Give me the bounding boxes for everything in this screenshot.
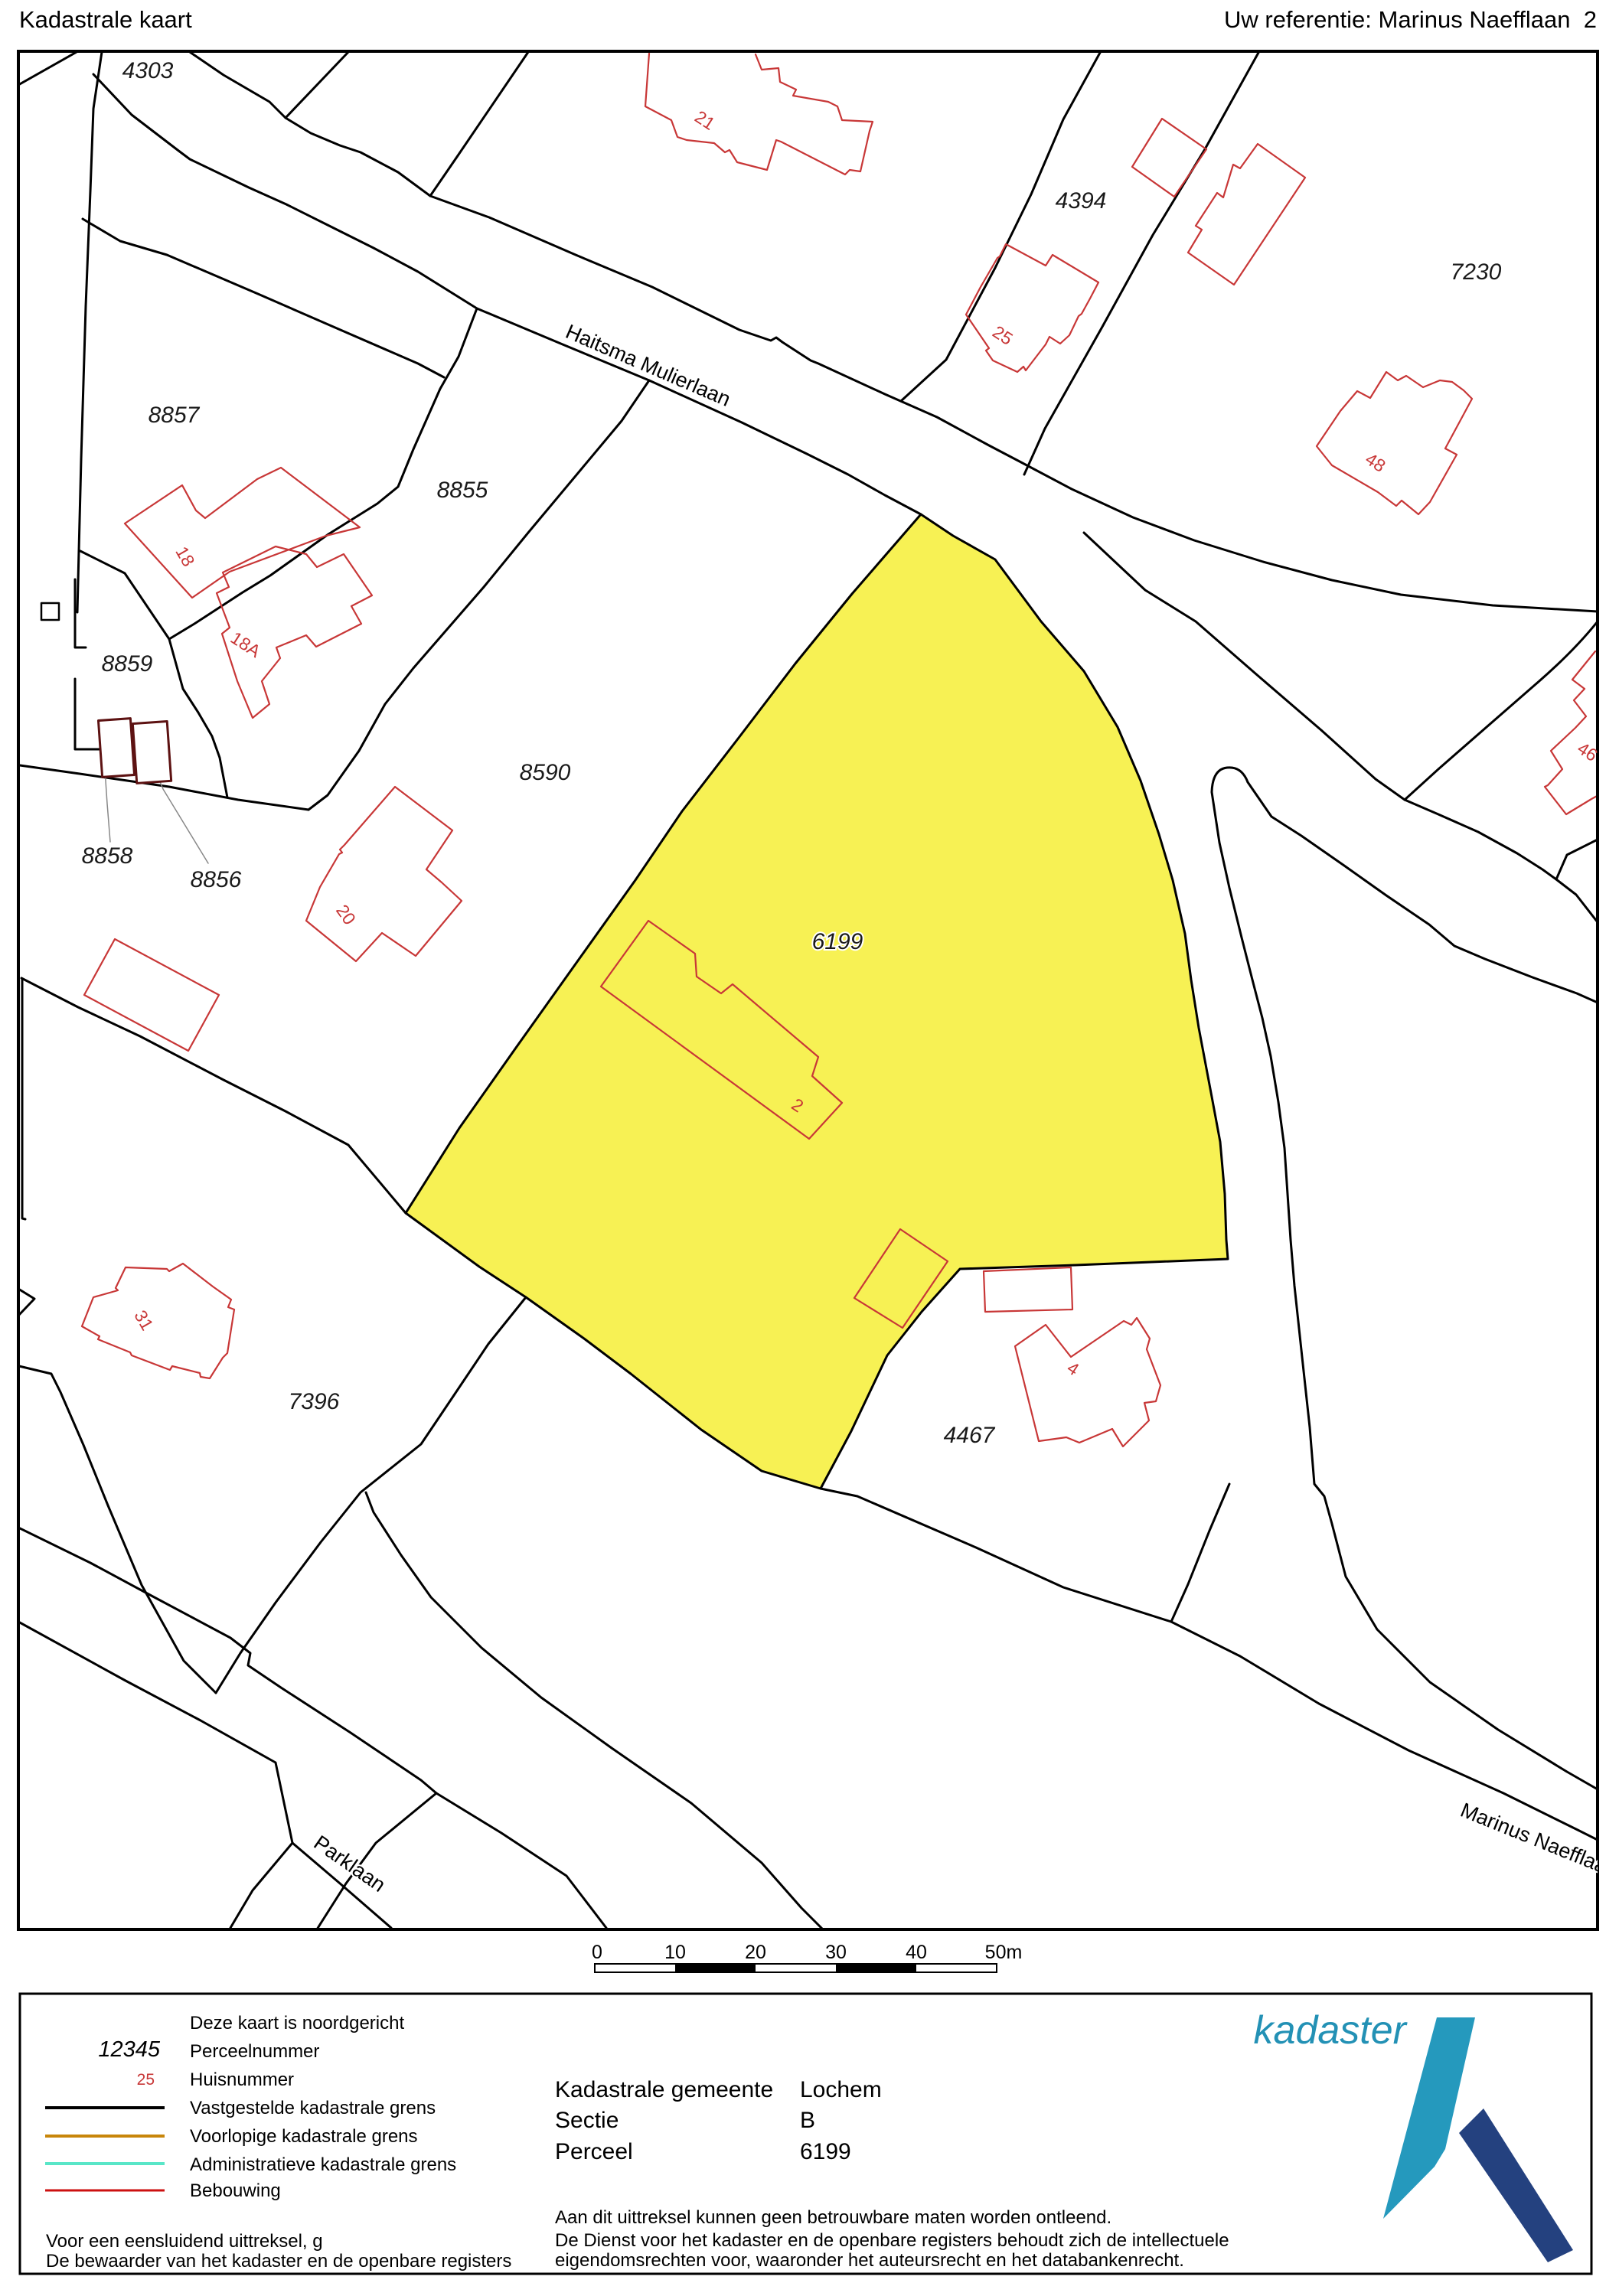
svg-text:7230: 7230 — [1451, 259, 1502, 285]
svg-text:4303: 4303 — [122, 58, 174, 83]
svg-text:kadaster: kadaster — [1254, 2008, 1408, 2053]
svg-text:30: 30 — [825, 1942, 847, 1963]
svg-text:4467: 4467 — [944, 1423, 996, 1448]
svg-text:Administratieve kadastrale gre: Administratieve kadastrale grens — [190, 2154, 456, 2175]
svg-text:6199: 6199 — [812, 929, 863, 954]
svg-text:Lochem: Lochem — [800, 2077, 882, 2102]
svg-text:8856: 8856 — [191, 867, 242, 892]
svg-text:eigendomsrechten voor, waarond: eigendomsrechten voor, waaronder het aut… — [555, 2250, 1184, 2271]
svg-text:6199: 6199 — [800, 2139, 851, 2164]
svg-text:40: 40 — [906, 1942, 927, 1963]
svg-text:Uw referentie: Marinus Naeffla: Uw referentie: Marinus Naefflaan 2 — [1224, 6, 1597, 33]
svg-text:De bewaarder van het kadaster: De bewaarder van het kadaster en de open… — [46, 2251, 511, 2272]
svg-text:50m: 50m — [985, 1942, 1023, 1963]
svg-text:Voor een eensluidend uittrekse: Voor een eensluidend uittreksel, g — [46, 2231, 323, 2252]
svg-text:Kadastrale kaart: Kadastrale kaart — [19, 6, 192, 33]
svg-text:8858: 8858 — [82, 843, 133, 869]
svg-text:10: 10 — [664, 1942, 686, 1963]
svg-text:Bebouwing: Bebouwing — [190, 2180, 281, 2201]
svg-text:0: 0 — [592, 1942, 602, 1963]
svg-text:7396: 7396 — [289, 1389, 340, 1414]
svg-text:Perceel: Perceel — [555, 2139, 633, 2164]
svg-text:12345: 12345 — [98, 2037, 161, 2062]
svg-text:25: 25 — [137, 2071, 155, 2089]
svg-text:Kadastrale gemeente: Kadastrale gemeente — [555, 2077, 773, 2102]
svg-text:20: 20 — [745, 1942, 766, 1963]
svg-text:4394: 4394 — [1056, 188, 1107, 214]
svg-text:Aan dit uittreksel kunnen geen: Aan dit uittreksel kunnen geen betrouwba… — [555, 2207, 1111, 2228]
svg-text:8857: 8857 — [149, 403, 201, 428]
svg-text:8590: 8590 — [520, 760, 571, 785]
svg-text:De Dienst voor het kadaster en: De Dienst voor het kadaster en de openba… — [555, 2230, 1229, 2251]
svg-text:Vastgestelde kadastrale grens: Vastgestelde kadastrale grens — [190, 2098, 436, 2118]
svg-text:Deze kaart is noordgericht: Deze kaart is noordgericht — [190, 2013, 404, 2033]
svg-text:Voorlopige kadastrale grens: Voorlopige kadastrale grens — [190, 2126, 418, 2147]
svg-text:Sectie: Sectie — [555, 2108, 619, 2133]
svg-text:B: B — [800, 2108, 815, 2133]
svg-text:8855: 8855 — [437, 478, 488, 503]
svg-text:Huisnummer: Huisnummer — [190, 2069, 294, 2090]
svg-text:8859: 8859 — [102, 651, 153, 677]
svg-text:Perceelnummer: Perceelnummer — [190, 2041, 319, 2062]
